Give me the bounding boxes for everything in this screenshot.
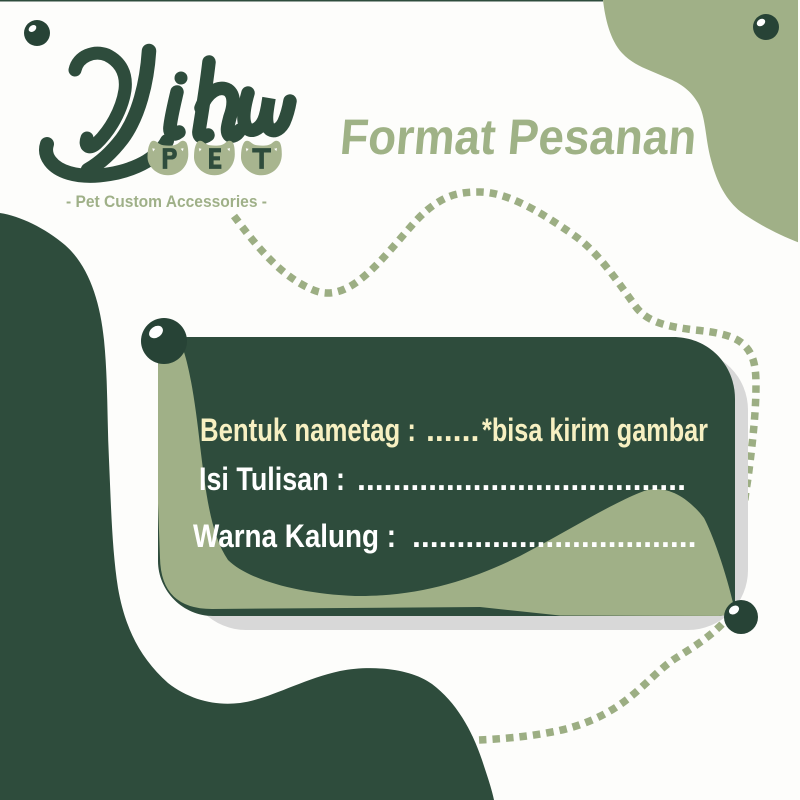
svg-text:*bisa kirim gambar: *bisa kirim gambar bbox=[482, 412, 708, 448]
svg-text:Isi Tulisan :: Isi Tulisan : bbox=[199, 461, 345, 497]
svg-text:- Pet Custom Accessories -: - Pet Custom Accessories - bbox=[66, 193, 267, 211]
svg-text:Format Pesanan: Format Pesanan bbox=[338, 109, 699, 165]
svg-text:Warna Kalung :: Warna Kalung : bbox=[193, 518, 396, 554]
svg-text:..............................: ..................................... bbox=[357, 461, 686, 497]
svg-text:..............................: ................................ bbox=[412, 518, 697, 554]
svg-text:......: ...... bbox=[426, 412, 479, 448]
svg-text:Bentuk nametag :: Bentuk nametag : bbox=[200, 412, 416, 448]
